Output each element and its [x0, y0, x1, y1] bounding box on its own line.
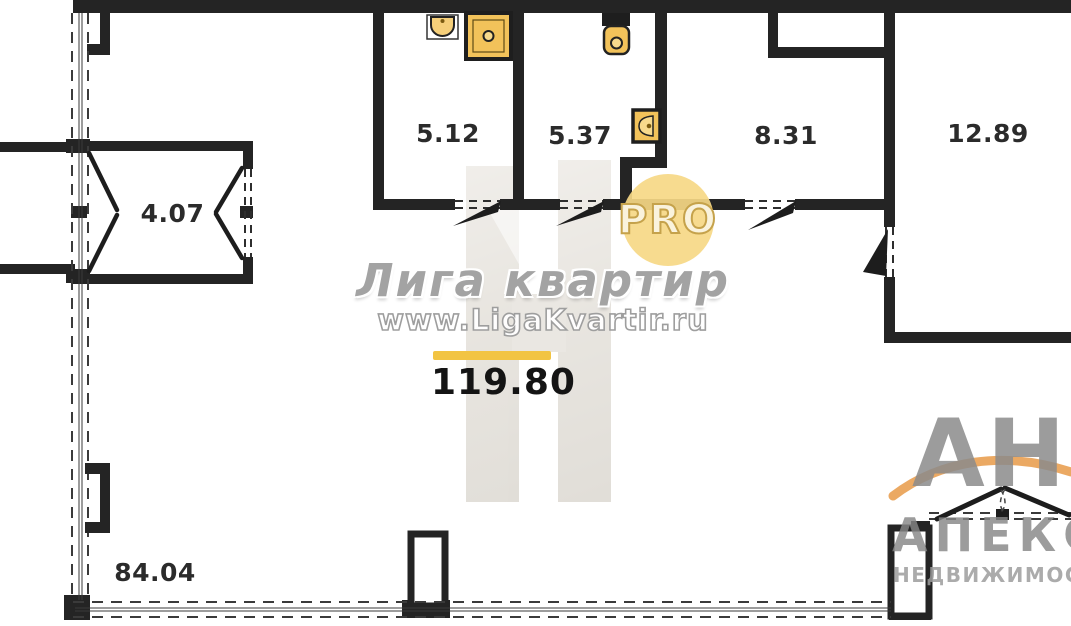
- window-column: [411, 534, 445, 606]
- total-area-underline: [433, 351, 551, 360]
- room-area-label-bathroom: 5.12: [405, 119, 491, 148]
- site-watermark: www.LigaKvartir.ru: [350, 303, 736, 337]
- pro-badge-label: PRO: [618, 197, 718, 243]
- room-area-label-room: 12.89: [944, 119, 1032, 148]
- room-area-label-vestibule: 4.07: [130, 199, 215, 228]
- brand-watermark: Лига квартир: [336, 254, 750, 307]
- door-swing: [748, 201, 796, 230]
- agency-subtitle: НЕДВИЖИМОСТЬ: [893, 565, 1071, 585]
- floorplan-image: PRO Лига квартир www.LigaKvartir.ru 119.…: [0, 0, 1071, 626]
- toilet-icon: [602, 13, 630, 54]
- room-area-label-great-room: 84.04: [110, 558, 200, 587]
- agency-initials: АН: [912, 408, 1067, 502]
- door-swing: [863, 229, 888, 276]
- room-area-label-hallway: 8.31: [743, 121, 829, 150]
- washbasin-icon: [633, 110, 660, 142]
- agency-logo: АН АПЕКС НЕДВИЖИМОСТЬ: [884, 412, 1071, 612]
- pro-badge: PRO: [622, 174, 714, 266]
- shower-icon: [466, 13, 511, 59]
- agency-name: АПЕКС: [892, 512, 1071, 558]
- sink-icon: [427, 15, 458, 39]
- door-swing: [453, 201, 501, 226]
- total-area-value: 119.80: [431, 362, 576, 403]
- door-swing: [556, 201, 604, 226]
- room-area-label-toilet-room: 5.37: [537, 121, 623, 150]
